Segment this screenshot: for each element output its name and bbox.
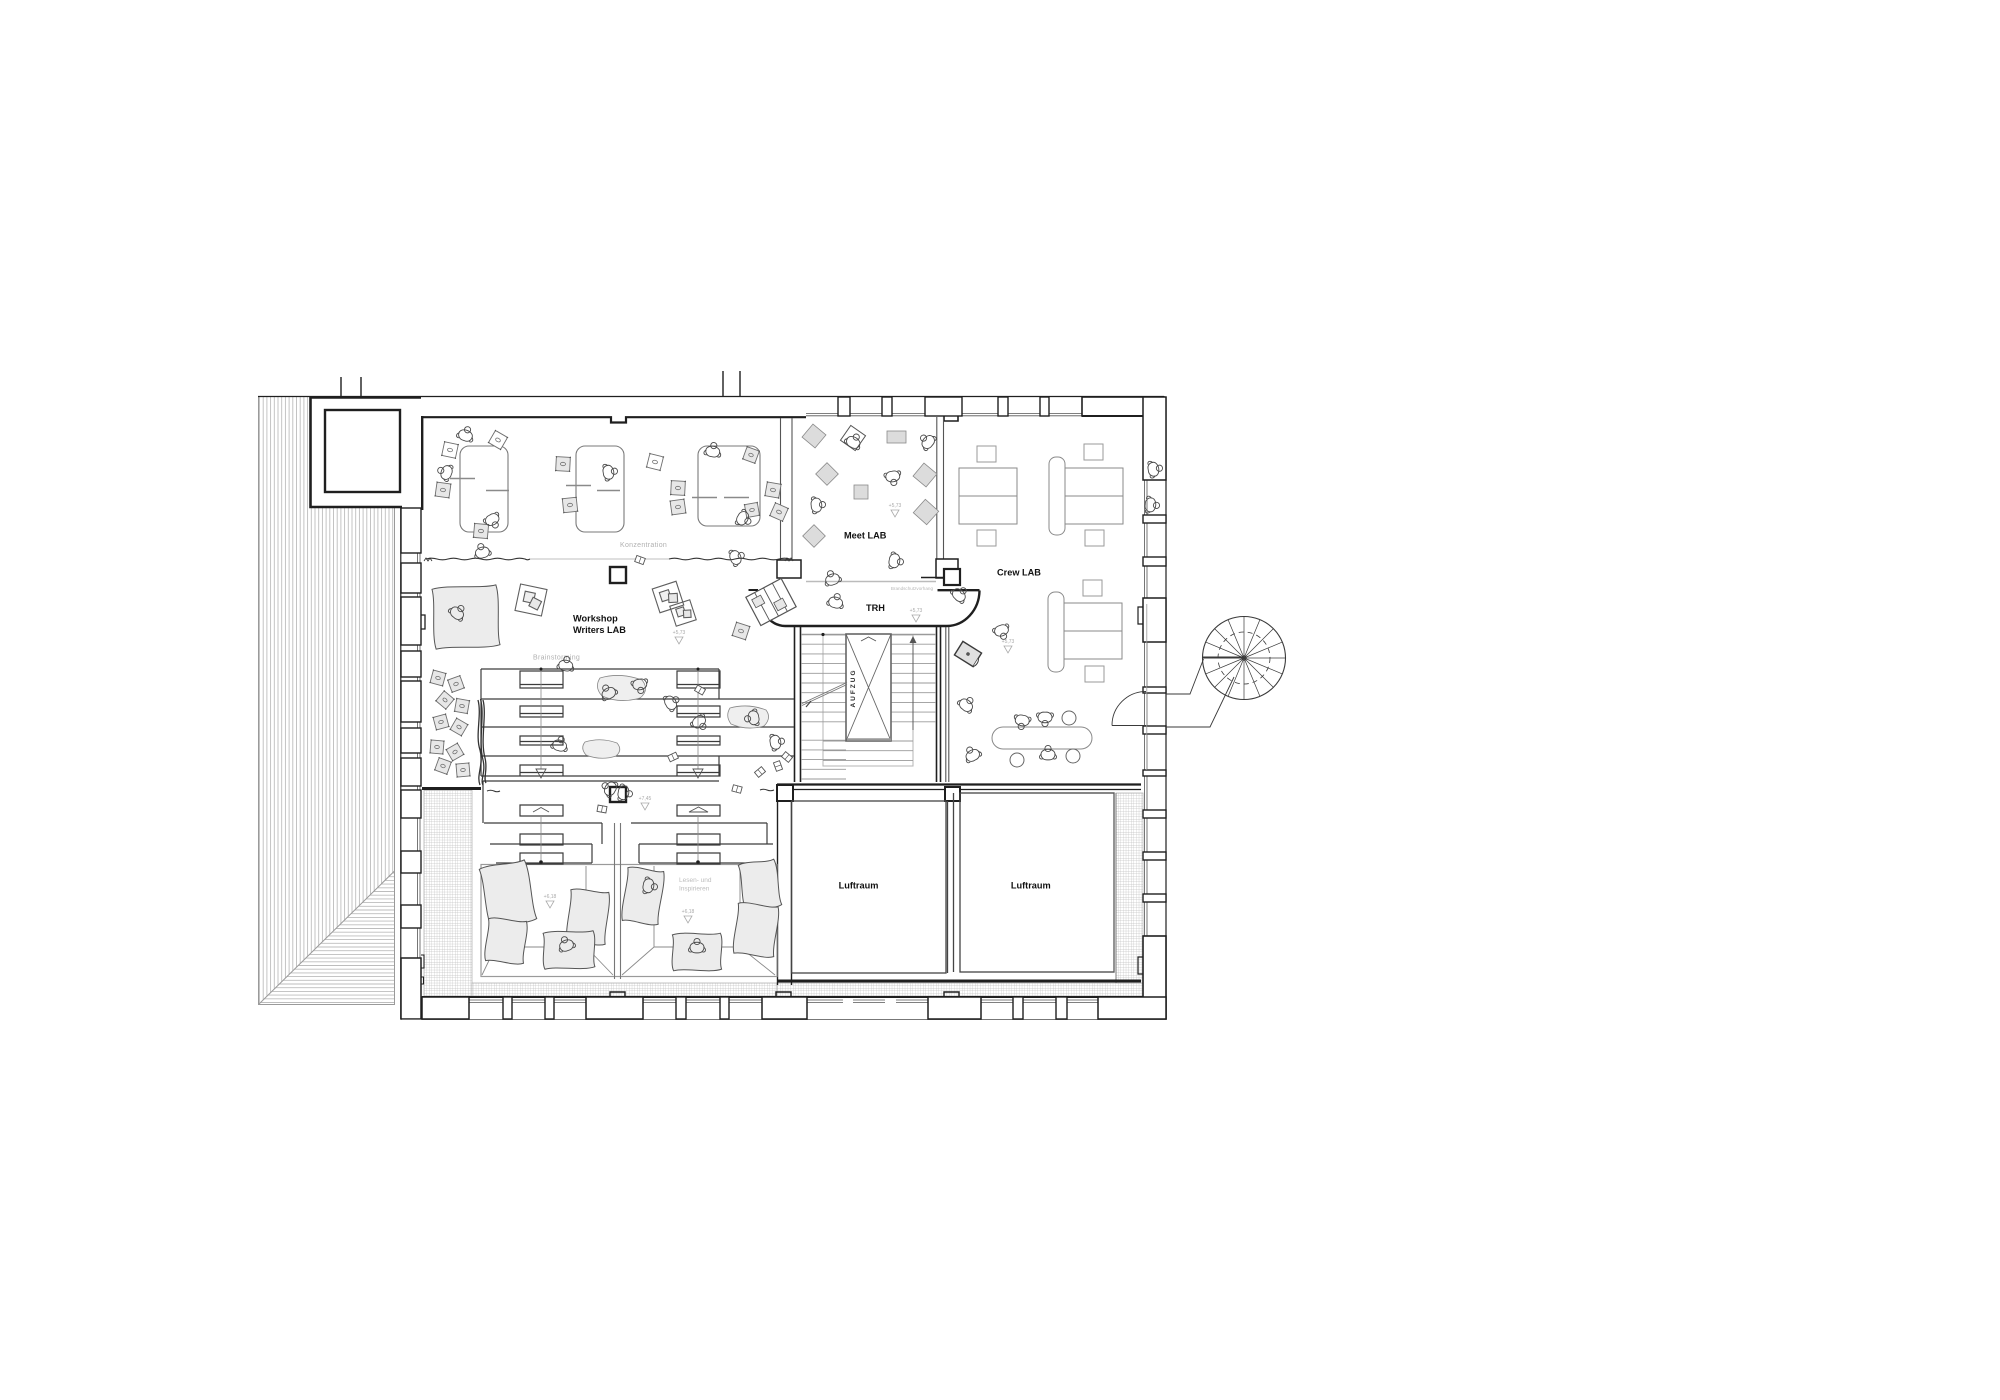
- svg-text:+5,73: +5,73: [673, 630, 686, 636]
- svg-text:Workshop: Workshop: [573, 614, 618, 624]
- svg-text:Brainstorming: Brainstorming: [533, 655, 580, 662]
- svg-text:Meet LAB: Meet LAB: [844, 530, 887, 540]
- svg-text:Konzentration: Konzentration: [620, 542, 667, 549]
- svg-text:+7,45: +7,45: [639, 796, 652, 802]
- svg-text:AUFZUG: AUFZUG: [850, 668, 857, 707]
- svg-text:+6,18: +6,18: [544, 894, 557, 900]
- svg-text:+6,18: +6,18: [682, 909, 695, 915]
- svg-text:+5,73: +5,73: [889, 503, 902, 509]
- svg-text:Crew LAB: Crew LAB: [997, 568, 1041, 578]
- svg-text:+5,73: +5,73: [1002, 639, 1015, 645]
- svg-text:Brandschutzvorhang: Brandschutzvorhang: [891, 586, 934, 591]
- svg-text:Luftraum: Luftraum: [839, 881, 879, 891]
- svg-text:Luftraum: Luftraum: [1011, 881, 1051, 891]
- svg-text:Writers LAB: Writers LAB: [573, 625, 626, 635]
- svg-text:Inspirieren: Inspirieren: [679, 886, 710, 893]
- svg-text:Lesen- und: Lesen- und: [679, 877, 712, 884]
- svg-text:+5,73: +5,73: [910, 608, 923, 614]
- svg-text:TRH: TRH: [866, 603, 885, 613]
